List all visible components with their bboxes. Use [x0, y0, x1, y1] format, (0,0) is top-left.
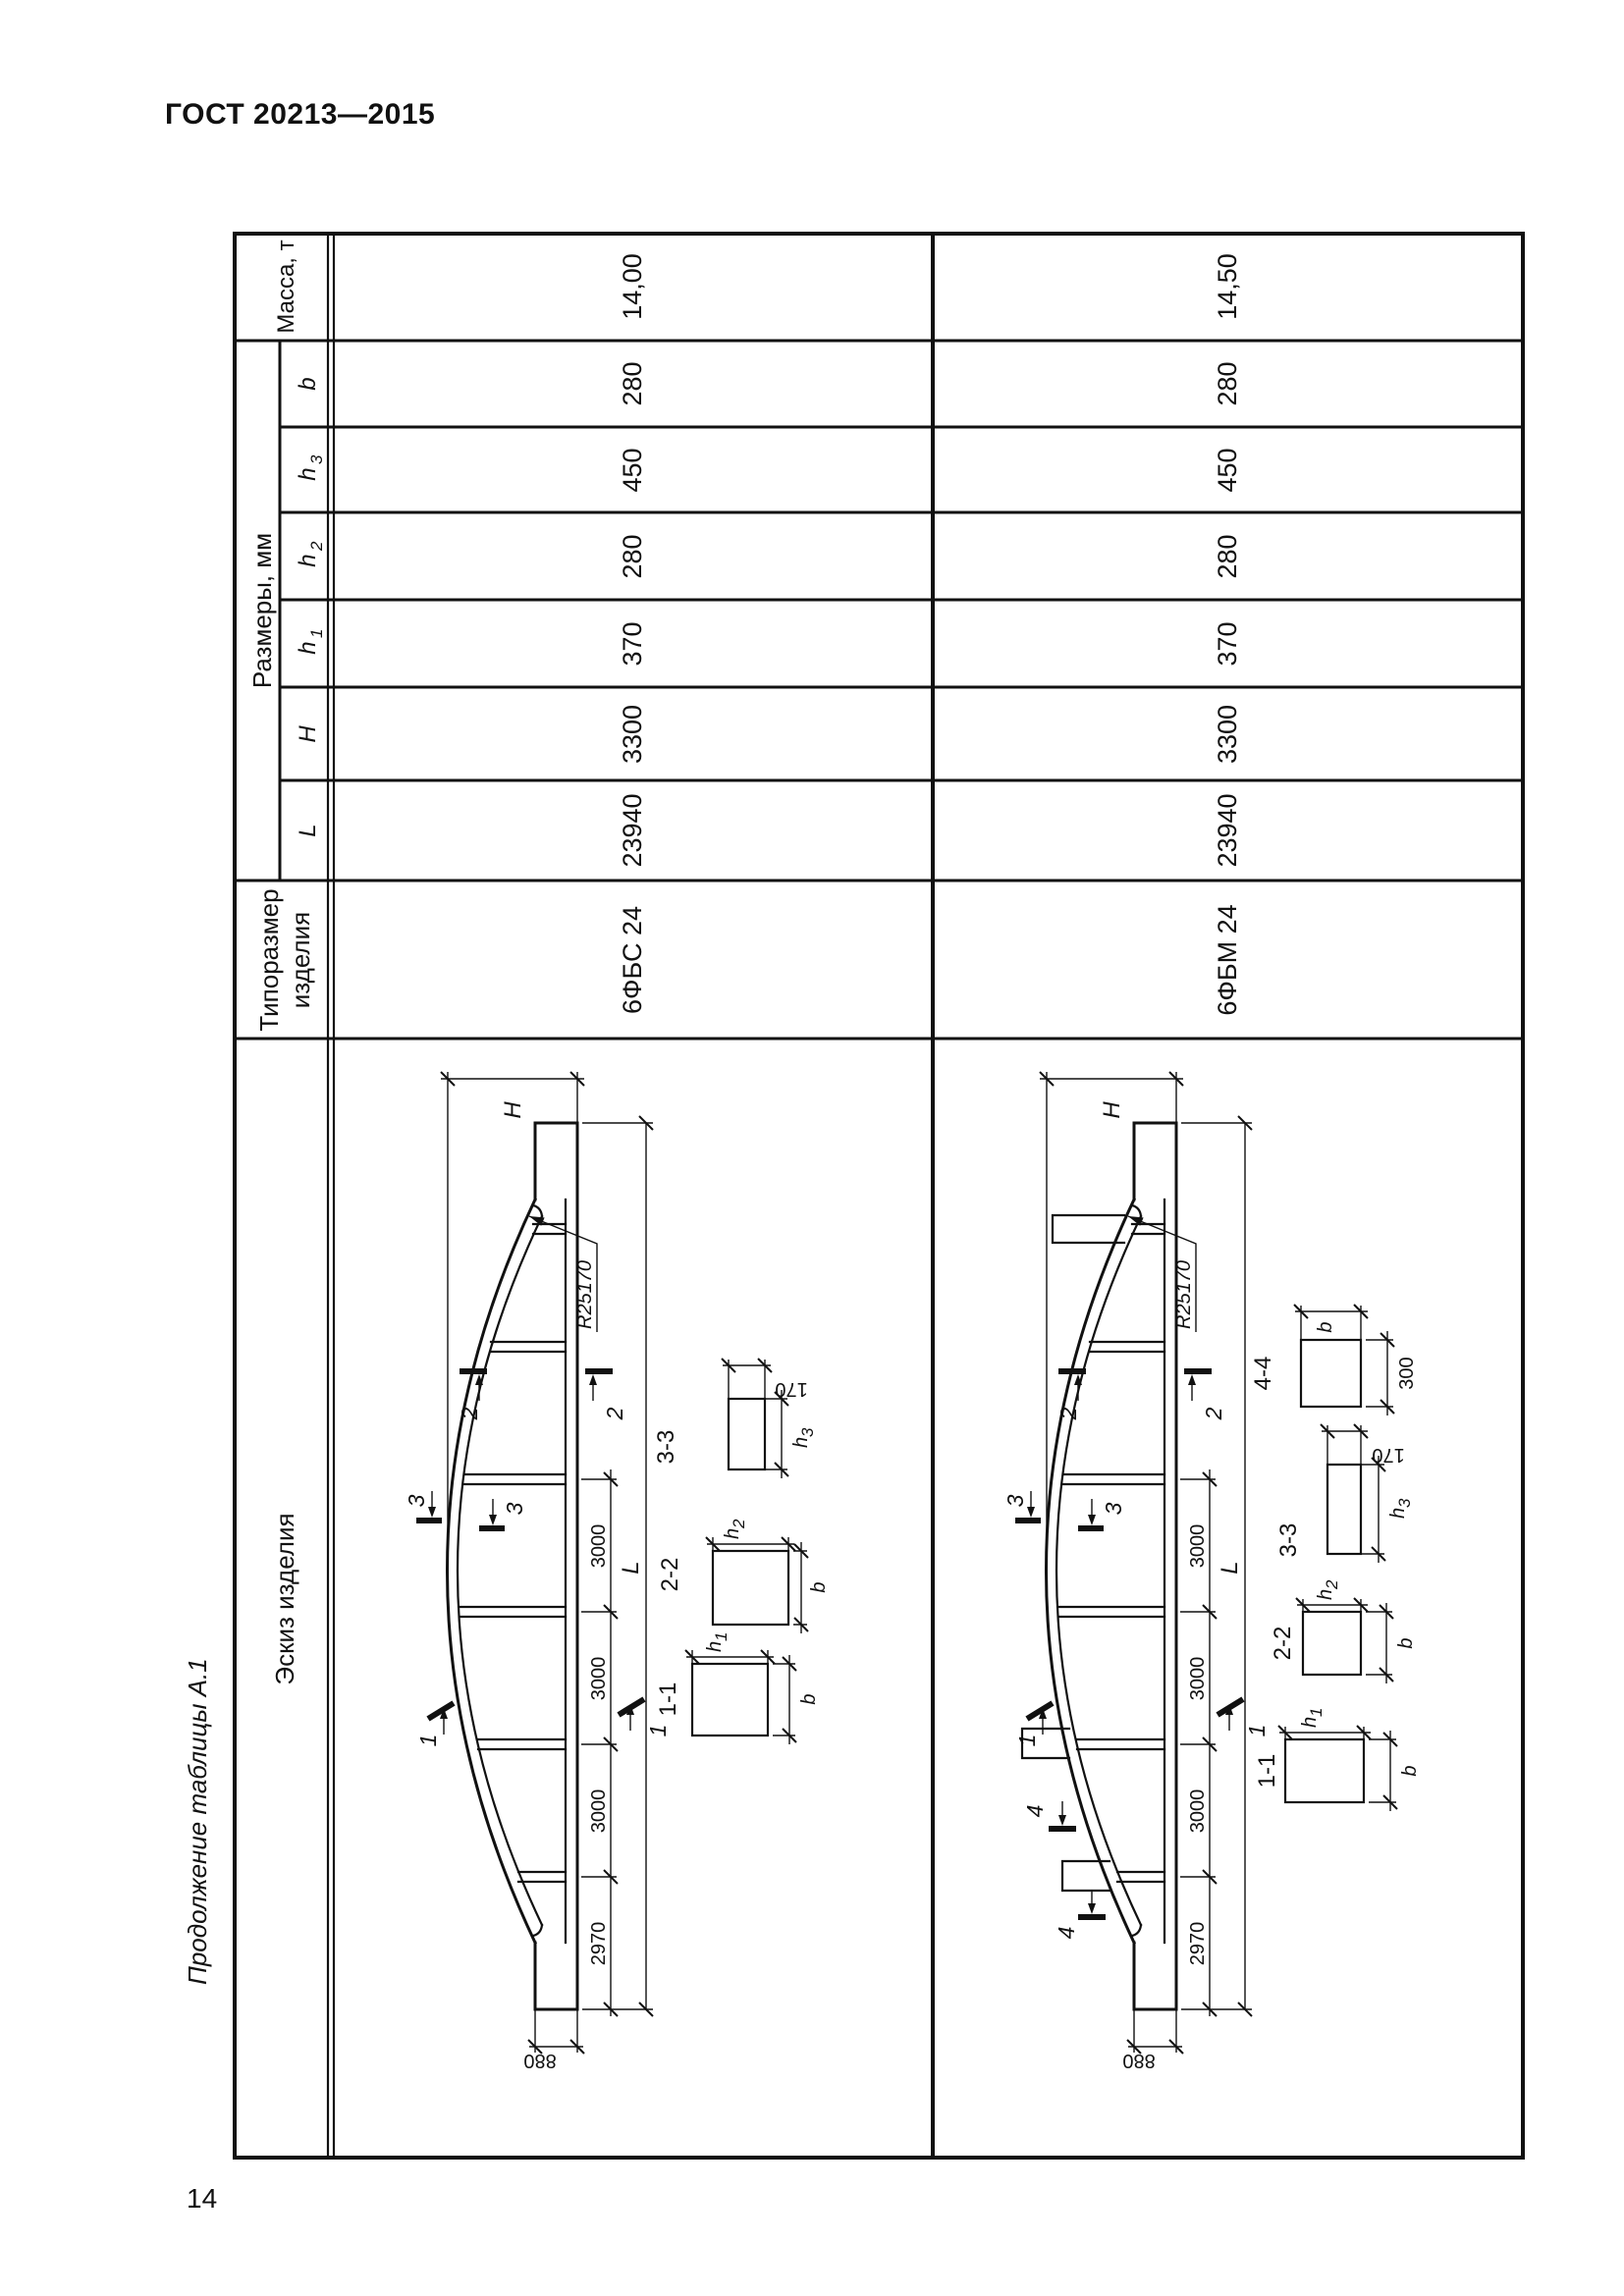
table-header-row: Эскиз изделия Типоразмер изделия Размеры…: [247, 240, 326, 1684]
dim-chain-3000: 3000: [588, 1524, 610, 1569]
section-caption: 1-1: [655, 1682, 681, 1717]
section-caption: 1-1: [1254, 1754, 1280, 1789]
beam-consoles: [1022, 1215, 1124, 1891]
dim-h2: h: [1315, 1589, 1336, 1600]
cut-4-label: 4: [1054, 1927, 1079, 1940]
cell-L: 23940: [1213, 793, 1242, 867]
cell-h3: 450: [618, 448, 647, 492]
section-2-2: 2-2 b h 2: [1270, 1579, 1417, 1683]
section-4-4: 4-4 b 300: [1250, 1305, 1418, 1415]
dim-h2: h: [722, 1528, 743, 1539]
cell-L: 23940: [618, 793, 647, 867]
section-1-1: 1-1 b h 1: [1254, 1708, 1421, 1811]
header-typesize-line2: изделия: [286, 912, 315, 1008]
cut-2-label: 2: [1056, 1407, 1081, 1420]
dim-L-label: L: [1217, 1561, 1243, 1574]
cell-b: 280: [1213, 361, 1242, 405]
document-page: ГОСТ 20213—2015 Продолжение таблицы А.1 …: [0, 0, 1624, 2296]
header-col-b: b: [295, 377, 321, 390]
dim-chain-3000: 3000: [1187, 1789, 1209, 1834]
section-3-3: 3-3 h 3 170: [1275, 1424, 1414, 1563]
table-grid: [235, 234, 1523, 2158]
dim-h3: h: [790, 1437, 812, 1448]
cut-2-label: 2: [602, 1407, 627, 1420]
dim-chain-3000: 3000: [1187, 1657, 1209, 1701]
dim-chain-2970: 2970: [1187, 1922, 1209, 1966]
cut-1-label: 1: [1244, 1725, 1270, 1737]
dim-H-label: H: [1099, 1101, 1125, 1119]
dim-b: b: [1315, 1321, 1336, 1332]
dim-h2-sub: 2: [730, 1519, 748, 1529]
section-caption: 2-2: [657, 1558, 683, 1592]
dim-300: 300: [1396, 1357, 1418, 1389]
header-col-L: L: [295, 824, 321, 836]
section-3-3: 3-3 h 3 170: [653, 1359, 817, 1478]
dim-H-label: H: [500, 1101, 526, 1119]
dim-880-label: 880: [523, 2050, 556, 2071]
cut-3-label: 3: [404, 1494, 429, 1507]
cell-h2: 280: [1213, 534, 1242, 578]
header-col-h3: h: [295, 467, 321, 480]
dim-h2-sub: 2: [1323, 1579, 1341, 1590]
cell-b: 280: [618, 361, 647, 405]
dim-h3-sub: 3: [798, 1427, 817, 1437]
dim-b: b: [808, 1581, 830, 1592]
section-caption: 3-3: [1275, 1523, 1302, 1558]
dim-170: 170: [1372, 1444, 1404, 1466]
cell-typesize: 6ФБС 24: [618, 906, 647, 1014]
dim-chain-3000: 3000: [588, 1657, 610, 1701]
dim-h1-sub: 1: [1307, 1708, 1326, 1717]
section-caption: 4-4: [1250, 1357, 1276, 1391]
cell-h1: 370: [1213, 621, 1242, 666]
dim-chain-2970: 2970: [588, 1922, 610, 1966]
header-col-h2: h: [295, 554, 321, 566]
cell-mass: 14,50: [1213, 253, 1242, 320]
rotated-table-a1: Эскиз изделия Типоразмер изделия Размеры…: [233, 232, 1525, 2160]
dim-b: b: [798, 1693, 820, 1704]
cut-3-label: 3: [1101, 1502, 1126, 1515]
dim-h1-sub: 1: [712, 1632, 731, 1641]
header-col-h1-sub: 1: [307, 629, 326, 638]
sketch-6fbs24: H L 2970 3000 3000 3000 880 R25170 1 1 2…: [404, 1072, 830, 2071]
section-caption: 3-3: [653, 1430, 679, 1465]
header-sketch: Эскиз изделия: [270, 1513, 299, 1684]
header-mass: Масса, т: [273, 240, 299, 333]
cell-H: 3300: [1213, 705, 1242, 764]
cut-2-label: 2: [457, 1407, 482, 1420]
section-2-2: 2-2 b h 2: [657, 1519, 830, 1633]
table-continuation-caption: Продолжение таблицы А.1: [183, 1718, 212, 1985]
dim-880-label: 880: [1122, 2050, 1155, 2071]
dim-h3: h: [1387, 1508, 1409, 1519]
cell-h2: 280: [618, 534, 647, 578]
section-1-1: 1-1 b h 1: [655, 1632, 820, 1744]
header-col-H: H: [295, 725, 321, 743]
standard-title: ГОСТ 20213—2015: [165, 98, 435, 132]
cut-1-label: 1: [1014, 1735, 1040, 1747]
cut-1-label: 1: [645, 1725, 671, 1737]
sketch-6fbm24: 4 4 H L 2970 3000 3000 3000 880 R25170 1…: [1002, 1072, 1421, 2071]
header-col-h1: h: [295, 641, 321, 654]
cell-h3: 450: [1213, 448, 1242, 492]
dim-h3-sub: 3: [1395, 1498, 1414, 1508]
table-row-6fbm24: 6ФБМ 24 23940 3300 370 280 450 280 14,50: [1213, 253, 1242, 1015]
header-dimensions-group: Размеры, мм: [247, 533, 277, 688]
radius-label: R25170: [574, 1260, 596, 1329]
page-number: 14: [187, 2183, 217, 2215]
cut-4-label: 4: [1022, 1805, 1048, 1818]
section-caption: 2-2: [1270, 1627, 1296, 1661]
dim-b: b: [1399, 1765, 1421, 1776]
dim-b: b: [1395, 1637, 1417, 1648]
table-a1-svg: Эскиз изделия Типоразмер изделия Размеры…: [233, 232, 1525, 2160]
dim-chain-3000: 3000: [1187, 1524, 1209, 1569]
dim-h1: h: [1299, 1717, 1321, 1728]
dim-L-label: L: [618, 1561, 644, 1574]
cut-3-label: 3: [1002, 1494, 1028, 1507]
dim-h1: h: [704, 1641, 726, 1652]
header-col-h2-sub: 2: [307, 541, 326, 552]
dim-170: 170: [775, 1378, 807, 1400]
table-row-6fbs24: 6ФБС 24 23940 3300 370 280 450 280 14,00: [618, 253, 647, 1014]
cell-h1: 370: [618, 621, 647, 666]
cell-mass: 14,00: [618, 253, 647, 320]
dim-chain-3000: 3000: [588, 1789, 610, 1834]
cell-H: 3300: [618, 705, 647, 764]
cut-1-label: 1: [415, 1735, 441, 1747]
radius-label: R25170: [1173, 1260, 1195, 1329]
header-col-h3-sub: 3: [307, 454, 326, 464]
header-typesize-line1: Типоразмер: [254, 888, 284, 1031]
cut-2-label: 2: [1201, 1407, 1226, 1420]
cut-3-label: 3: [502, 1502, 527, 1515]
cell-typesize: 6ФБМ 24: [1213, 904, 1242, 1015]
